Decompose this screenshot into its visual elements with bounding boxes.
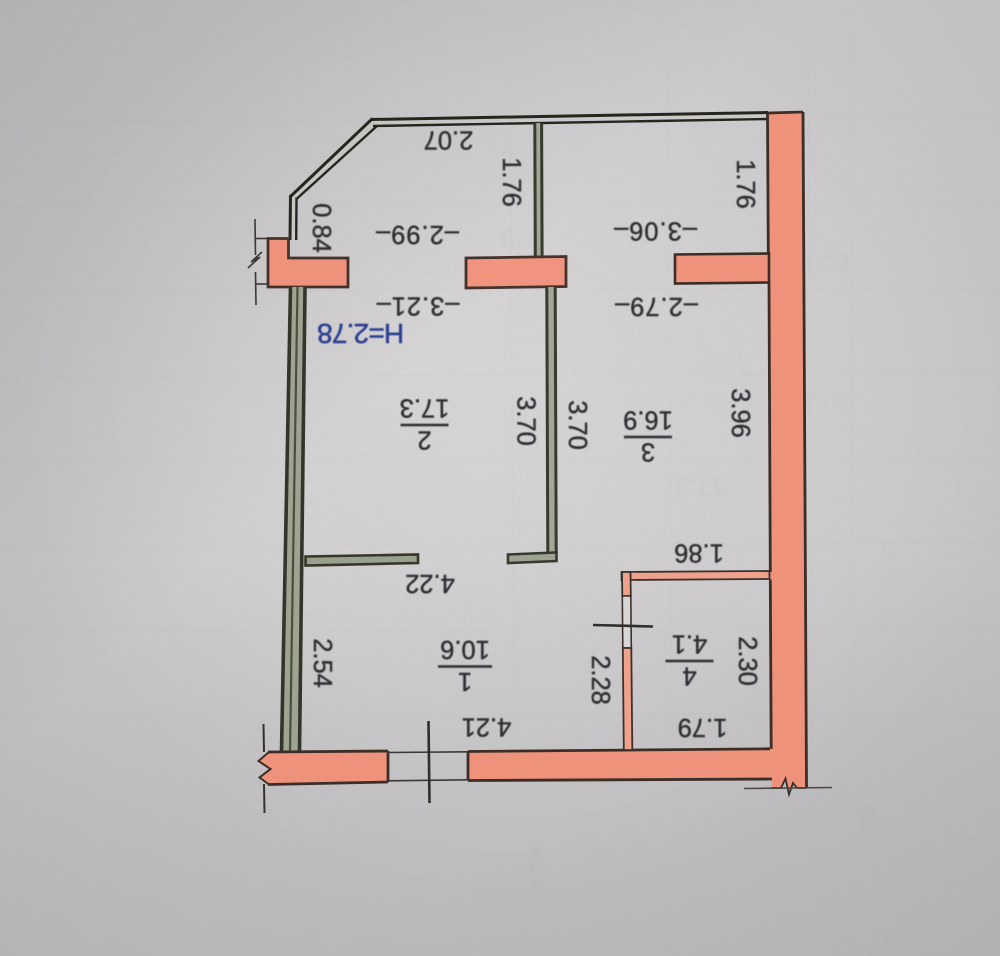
svg-text:2.30: 2.30 [733,636,761,686]
svg-text:0.84: 0.84 [307,203,335,253]
svg-text:16.9: 16.9 [623,406,673,434]
svg-text:1: 1 [458,667,472,695]
svg-text:–2.79–: –2.79– [614,292,698,320]
svg-text:1.79: 1.79 [678,713,728,741]
svg-text:–3.06–: –3.06– [613,217,697,245]
svg-text:1.86: 1.86 [674,539,724,567]
svg-text:4: 4 [682,662,696,690]
svg-text:4.22: 4.22 [405,569,455,597]
svg-text:–2.99–: –2.99– [375,220,459,248]
svg-text:2.07: 2.07 [424,126,474,154]
svg-text:H=2.78: H=2.78 [318,318,404,349]
svg-text:4.1: 4.1 [672,630,707,658]
svg-text:1.76: 1.76 [497,157,525,207]
svg-text:17.3: 17.3 [400,394,450,422]
svg-text:3.70: 3.70 [512,396,540,446]
svg-text:2.28: 2.28 [586,655,614,705]
svg-text:2: 2 [417,426,431,454]
svg-text:3.70: 3.70 [563,400,591,450]
svg-text:1.76: 1.76 [731,159,759,209]
svg-text:4.21: 4.21 [462,713,512,741]
svg-text:2.54: 2.54 [308,638,336,688]
svg-text:–3.21–: –3.21– [376,292,460,320]
svg-text:10.6: 10.6 [440,635,490,663]
svg-text:3.96: 3.96 [726,388,754,438]
svg-text:3: 3 [641,438,655,466]
